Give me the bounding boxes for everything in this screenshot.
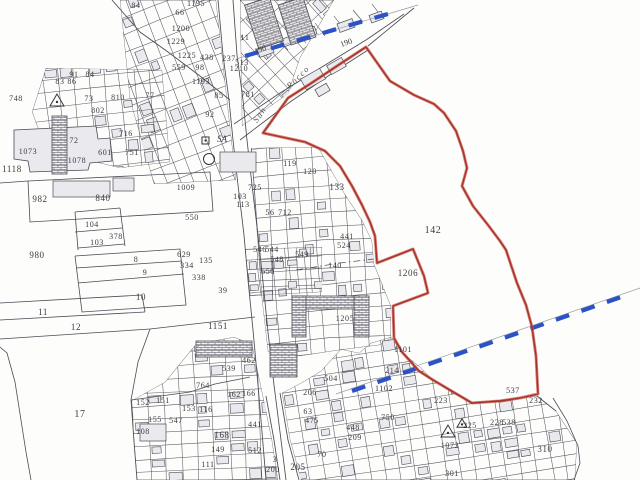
parcel-label: 441 (340, 232, 354, 241)
parcel-label: 601 (98, 148, 112, 157)
parcel-label: 153 (182, 404, 196, 413)
parcel-label: 629 (177, 250, 191, 259)
parcel-label: 1210 (230, 64, 248, 73)
parcel-label: 549 (295, 250, 309, 259)
parcel-label: 84 (131, 1, 140, 10)
brick-building (196, 341, 252, 357)
parcel-label: 119 (283, 159, 297, 168)
parcel-label: 750 (381, 413, 395, 422)
parcel-label: 725 (248, 183, 262, 192)
parcel-label: 155 (148, 415, 162, 424)
parcel-label: 310 (537, 444, 552, 454)
parcel-label: 751 (125, 148, 139, 157)
parcel-label: 548 (270, 255, 284, 264)
parcel-label: 716 (119, 129, 133, 138)
parcel-label: 539 (222, 364, 236, 373)
parcel-label: 85 (214, 91, 223, 100)
parcel-label: 103 (90, 238, 104, 247)
parcel-label: 438 (200, 53, 214, 62)
parcel-label: 748 (9, 94, 23, 103)
parcel-label: 200 (266, 465, 280, 474)
parcel-label: 1118 (2, 164, 22, 174)
parcel-label: 8 (134, 255, 139, 264)
parcel-label: 462 (242, 356, 256, 365)
parcel-label: 512 (248, 446, 262, 455)
parcel-label: 475 (305, 416, 319, 425)
parcel-label: 378 (109, 232, 123, 241)
parcel-label: 550 (185, 213, 199, 222)
parcel-label: 206 (303, 388, 317, 397)
parcel-label: 1205 (336, 314, 354, 323)
parcel-label: 10 (136, 292, 146, 302)
parcel-label: 538 (502, 418, 516, 427)
parcel-label: 113 (236, 200, 250, 209)
parcel-label: 3 (273, 455, 278, 464)
brick-building (270, 344, 297, 377)
parcel-label: 1225 (178, 51, 196, 60)
parcel-label: 162 (227, 390, 241, 399)
parcel-label: 108 (136, 427, 150, 436)
parcel-label: 73 (84, 94, 93, 103)
parcel-label: 1229 (167, 37, 185, 46)
map-canvas[interactable]: SASanRocco190190841195661200122911122543… (0, 0, 640, 480)
parcel-label: 86 (67, 77, 76, 86)
parcel-label: 448 (346, 423, 360, 432)
parcel-label: 152 (136, 398, 150, 407)
sa-symbol-label: SA (217, 134, 228, 144)
parcel-label: 982 (32, 194, 47, 204)
parcel-label: 1200 (172, 24, 190, 33)
parcel-label: 149 (211, 445, 225, 454)
parcel-label: 223 (434, 396, 448, 405)
parcel-label: 559 (172, 63, 186, 72)
parcel-label: 1102 (375, 384, 393, 393)
parcel-label: 98 (195, 63, 204, 72)
parcel-label: 120 (303, 167, 317, 176)
parcel-label: 1101 (394, 345, 412, 354)
parcel-label: 1151 (208, 321, 228, 331)
parcel-label: 334 (180, 261, 194, 270)
parcel-label: 980 (29, 250, 44, 260)
parcel-label: 72 (69, 136, 78, 145)
parcel-label: 166 (242, 389, 256, 398)
parcel-label: 1073 (441, 441, 459, 450)
parcel-label: 205 (290, 462, 305, 472)
parcel-label: 1206 (398, 268, 418, 278)
parcel-label: 1078 (68, 156, 86, 165)
parcel-label: 840 (95, 193, 110, 203)
parcel-label: 712 (278, 208, 292, 217)
parcel-label: 232 (529, 396, 543, 405)
parcel-label: 84 (85, 70, 94, 79)
parcel-label: 1195 (187, 0, 205, 8)
parcel-label: 116 (199, 405, 213, 414)
parcel-label: 77 (145, 91, 154, 100)
parcel-label: 104 (85, 220, 99, 229)
parcel-label: 441 (248, 420, 262, 429)
parcel-label: 537 (506, 386, 520, 395)
parcel-label: 338 (192, 273, 206, 282)
parcel-label: 214 (385, 366, 399, 375)
parcel-label: 301 (445, 469, 459, 478)
cadastral-map-viewer: SASanRocco190190841195661200122911122543… (0, 0, 640, 480)
parcel-label: 1073 (19, 147, 37, 156)
parcel-label: 66 (175, 8, 184, 17)
parcel-label: 12 (71, 322, 81, 332)
building (113, 178, 134, 191)
parcel-label: 133 (329, 182, 344, 192)
parcel-label: 237 (222, 54, 236, 63)
parcel-label: 151 (156, 396, 170, 405)
brick-building (52, 116, 67, 174)
parcel-label: 1193 (192, 77, 210, 86)
parcel-label: 504 (324, 374, 338, 383)
parcel-label: 11 (38, 307, 48, 317)
parcel-label: 140 (328, 261, 342, 270)
parcel-label: 524 (337, 241, 351, 250)
parcel-label: 810 (111, 93, 125, 102)
building (220, 152, 256, 172)
parcel-label: 225 (463, 421, 477, 430)
parcel-label: 92 (205, 110, 214, 119)
parcel-label: 111 (201, 460, 214, 469)
parcel-label: 544 (265, 245, 279, 254)
parcel-label: 802 (91, 106, 105, 115)
parcel-label: 1009 (177, 183, 195, 192)
parcel-label: 168 (214, 430, 229, 440)
parcel-label: 9 (143, 268, 148, 277)
parcel-label: 56 (265, 208, 274, 217)
parcel-label: 63 (303, 407, 312, 416)
parcel-label: 209 (348, 433, 362, 442)
parcel-label: 135 (199, 256, 213, 265)
parcel-label: 764 (196, 381, 210, 390)
parcel-label: 142 (425, 225, 442, 236)
parcel-label: 550 (261, 267, 275, 276)
parcel-label: 781 (241, 90, 255, 99)
brick-building (354, 296, 369, 337)
parcel-label: 83 (55, 77, 64, 86)
parcel-label: 547 (169, 416, 183, 425)
parcel-label: 70 (317, 450, 326, 459)
parcel-label: 39 (218, 286, 227, 295)
parcel-label: 17 (74, 409, 85, 420)
parcel-label: 11 (241, 33, 250, 42)
brick-building (292, 296, 306, 337)
